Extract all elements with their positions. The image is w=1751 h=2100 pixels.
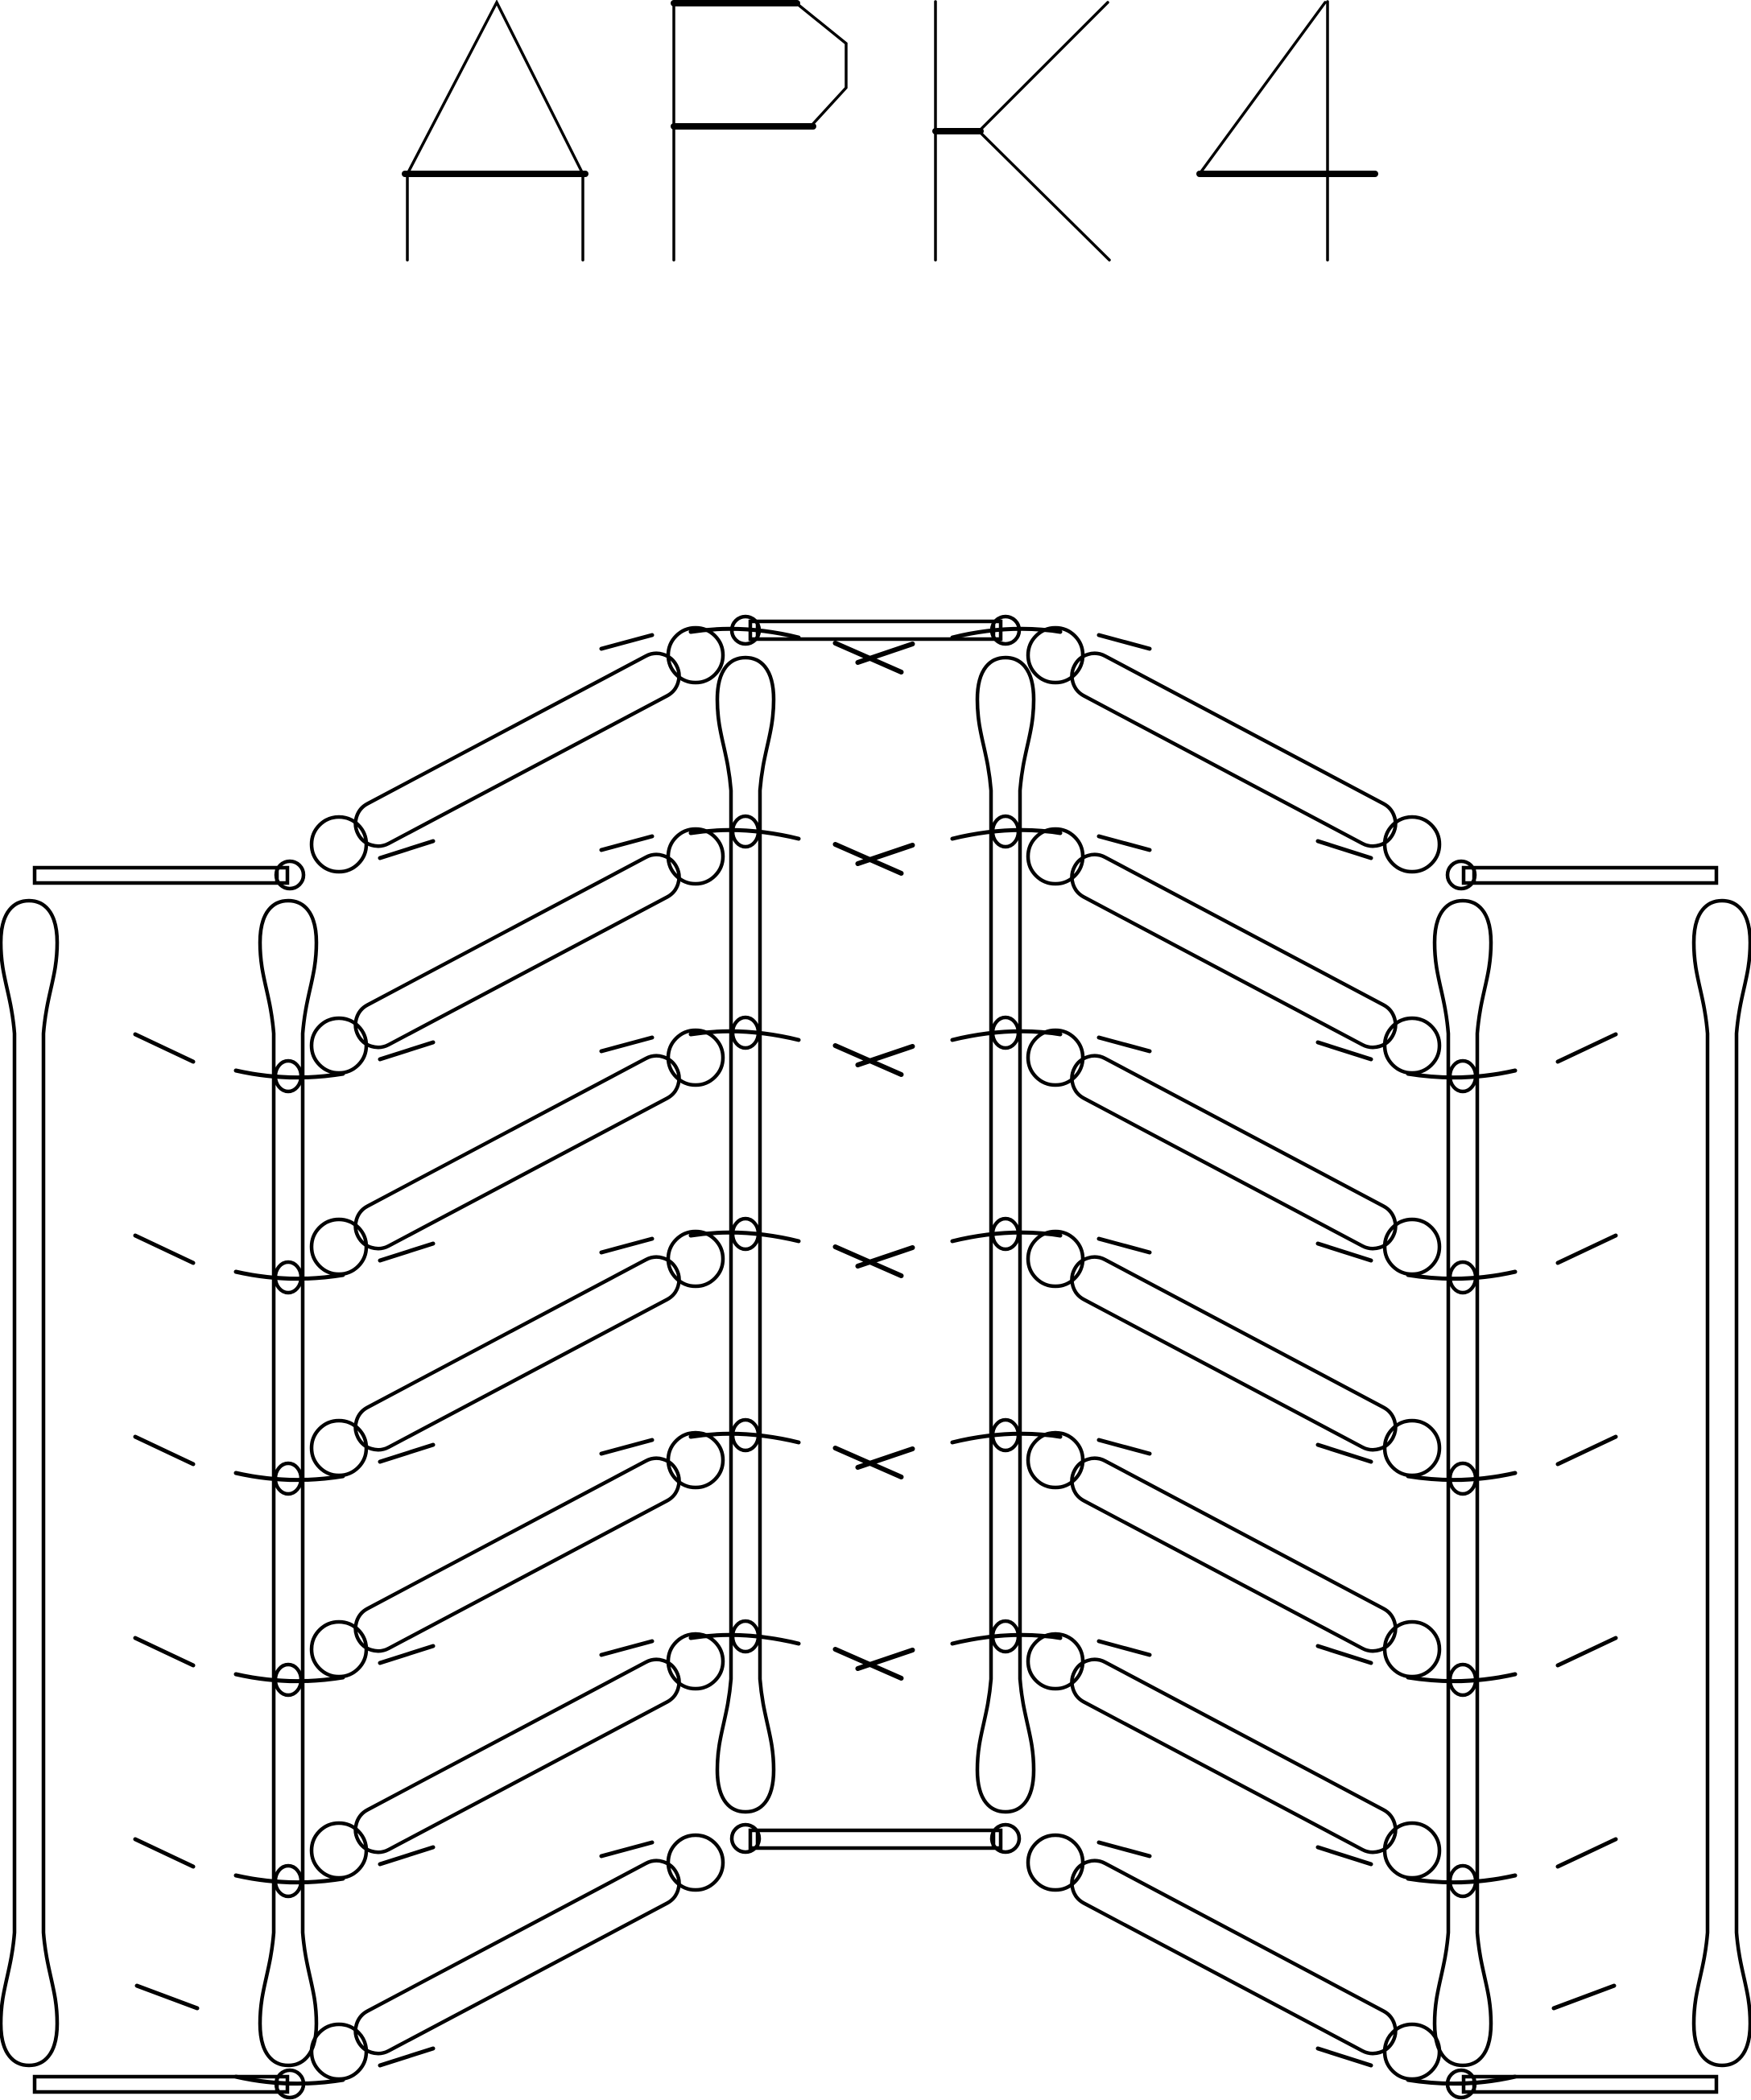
right-diagonal-capsule [1064,1652,1404,1860]
right-diagonal-upper-pin [1028,628,1083,683]
link-bars [35,617,1716,2098]
left-upper-motion-dash [601,1038,652,1051]
left-diagonal-lower-pin [312,1018,366,1073]
right-diagonal-capsule [1064,646,1404,854]
left-diagonal-lower-pin [312,1823,366,1878]
diagonal-members [312,628,1439,2079]
left-diagonal-lower-pin [312,2024,366,2079]
cross-mark-stroke [858,644,913,662]
right-diagonal-capsule [1064,847,1404,1055]
outer-right-post [1694,901,1750,2065]
right-diagonal-lower-pin [1385,1018,1439,1073]
left-gap-dash [135,1839,193,1867]
top-right-bar [1464,868,1716,883]
left-diagonal-capsule [348,1652,688,1860]
right-diagonal-upper-pin [1028,1232,1083,1286]
right-upper-motion-dash [1099,1239,1150,1252]
apk4-assembly-drawing [0,0,1751,2100]
cross-marks [836,643,913,1678]
cross-mark-stroke [858,1449,913,1467]
right-upper-motion-dash [1099,1440,1150,1454]
right-diagonal-capsule [1064,1450,1404,1659]
right-diagonal-upper-pin [1028,1634,1083,1689]
letter-stroke [979,2,1108,131]
left-gap-dash [135,1034,193,1062]
right-gap-dash [1558,1638,1616,1665]
right-upper-motion-dash [1099,1842,1150,1856]
left-diagonal-lower-pin [312,1421,366,1475]
left-upper-motion-dash [601,1641,652,1655]
letter-stroke [407,2,583,174]
right-gap-dash [1558,1034,1616,1062]
letter-stroke [795,2,846,126]
right-diagonal-lower-pin [1385,1421,1439,1475]
left-gap-dash [137,1986,197,2008]
right-diagonal-lower-pin [1385,2024,1439,2079]
top-left-bar [35,868,287,883]
right-upper-motion-dash [1099,836,1150,850]
left-upper-motion-dash [601,1842,652,1856]
right-gap-dash [1558,1437,1616,1464]
right-upper-motion-dash [1099,635,1150,649]
letter-stroke [979,131,1109,260]
right-gap-dash [1558,1839,1616,1867]
left-diagonal-upper-pin [668,829,723,884]
right-gap-dash [1554,1986,1614,2008]
right-diagonal-capsule [1064,1853,1404,2061]
left-upper-motion-dash [601,1239,652,1252]
top-right-bar-pin [1447,861,1475,889]
left-diagonal-capsule [348,1853,688,2061]
cross-mark-stroke [858,845,913,864]
left-diagonal-capsule [348,847,688,1055]
left-upper-motion-dash [601,1440,652,1454]
title-lettering [405,2,1375,260]
right-diagonal-lower-pin [1385,1622,1439,1677]
left-diagonal-capsule [348,1048,688,1256]
left-diagonal-upper-pin [668,1030,723,1085]
left-diagonal-upper-pin [668,1232,723,1286]
left-gap-dash [135,1236,193,1263]
right-diagonal-lower-pin [1385,1823,1439,1878]
letter-stroke [1200,2,1325,174]
right-diagonal-capsule [1064,1048,1404,1256]
left-gap-dash [135,1437,193,1464]
left-diagonal-upper-pin [668,1634,723,1689]
right-diagonal-lower-pin [1385,817,1439,872]
right-diagonal-capsule [1064,1249,1404,1458]
left-diagonal-capsule [348,646,688,854]
left-diagonal-lower-pin [312,1622,366,1677]
left-diagonal-capsule [348,1249,688,1458]
bottom-center-bar-pin [992,1825,1019,1852]
left-diagonal-upper-pin [668,1433,723,1487]
rail-joints [236,629,1515,2083]
cross-mark-stroke [858,1046,913,1065]
left-upper-motion-dash [601,836,652,850]
left-gap-dash [135,1638,193,1665]
right-gap-dash [1558,1236,1616,1263]
right-diagonal-lower-pin [1385,1219,1439,1274]
right-diagonal-upper-pin [1028,1835,1083,1890]
cross-mark-stroke [858,1248,913,1266]
drawing-page: APK 4 [0,0,1751,2100]
right-diagonal-upper-pin [1028,829,1083,884]
right-upper-motion-dash [1099,1641,1150,1655]
outer-left-post [1,901,57,2065]
left-diagonal-upper-pin [668,628,723,683]
right-upper-motion-dash [1099,1038,1150,1051]
right-diagonal-upper-pin [1028,1030,1083,1085]
cross-mark-stroke [858,1650,913,1669]
gap-dashes [135,1034,1616,2008]
bottom-center-bar [750,1830,1001,1848]
left-diagonal-capsule [348,1450,688,1659]
left-upper-motion-dash [601,635,652,649]
right-diagonal-upper-pin [1028,1433,1083,1487]
left-diagonal-lower-pin [312,817,366,872]
bottom-center-bar-pin [732,1825,759,1852]
left-diagonal-upper-pin [668,1835,723,1890]
top-left-bar-pin [276,861,304,889]
left-diagonal-lower-pin [312,1219,366,1274]
